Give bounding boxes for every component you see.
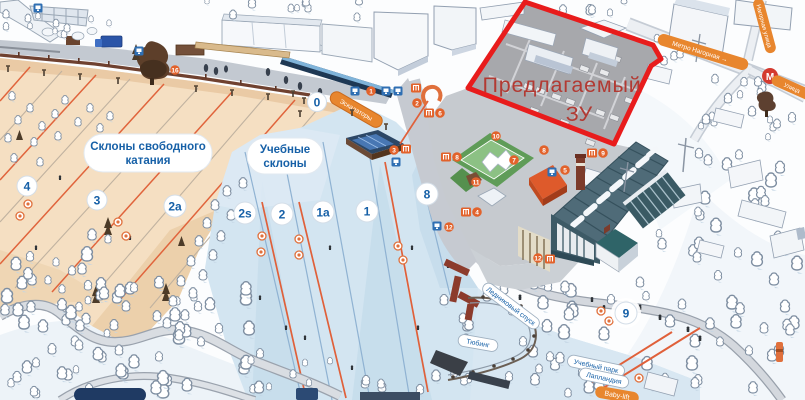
svg-text:склоны: склоны xyxy=(263,158,306,170)
svg-text:9: 9 xyxy=(623,307,630,321)
svg-text:3: 3 xyxy=(94,194,101,208)
svg-text:4: 4 xyxy=(475,209,479,216)
svg-text:1: 1 xyxy=(369,88,373,95)
svg-text:16: 16 xyxy=(171,67,179,74)
svg-text:катания: катания xyxy=(126,155,171,167)
svg-text:4: 4 xyxy=(24,180,31,194)
svg-text:1: 1 xyxy=(364,205,371,219)
svg-text:1a: 1a xyxy=(316,206,330,220)
svg-text:12: 12 xyxy=(534,255,542,262)
svg-text:8: 8 xyxy=(542,147,546,154)
svg-text:7: 7 xyxy=(512,157,516,164)
svg-text:2s: 2s xyxy=(238,207,252,221)
svg-text:10: 10 xyxy=(492,133,500,140)
svg-text:5: 5 xyxy=(563,167,567,174)
svg-text:2a: 2a xyxy=(168,200,182,214)
svg-text:Учебные: Учебные xyxy=(260,144,310,156)
svg-text:11: 11 xyxy=(473,179,480,186)
svg-text:2: 2 xyxy=(279,208,286,222)
svg-text:Склоны свободного: Склоны свободного xyxy=(90,141,206,153)
svg-text:12: 12 xyxy=(445,224,453,231)
svg-text:0: 0 xyxy=(314,96,321,110)
svg-text:3: 3 xyxy=(392,147,396,154)
svg-text:8: 8 xyxy=(455,154,459,161)
svg-text:2: 2 xyxy=(415,100,419,107)
svg-text:6: 6 xyxy=(438,110,442,117)
svg-text:8: 8 xyxy=(424,188,431,202)
svg-text:Предлагаемый: Предлагаемый xyxy=(482,73,641,97)
svg-text:ЗУ: ЗУ xyxy=(566,102,593,126)
svg-text:9: 9 xyxy=(601,150,605,157)
